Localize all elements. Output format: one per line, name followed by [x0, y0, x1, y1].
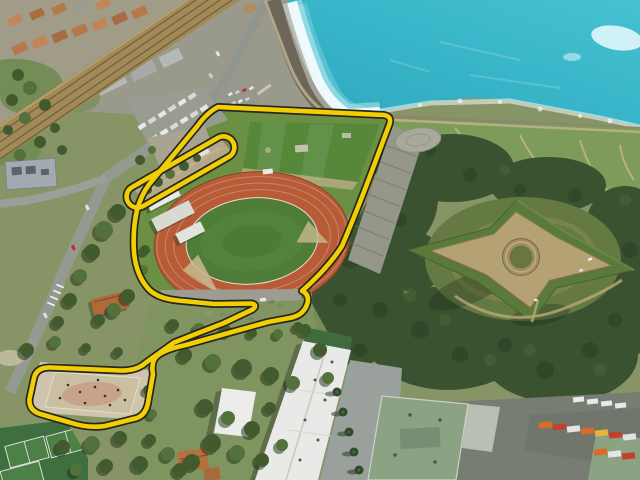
- aerial-photo-stage: [0, 0, 640, 480]
- aerial-photo: [0, 0, 640, 480]
- track-shelter: [263, 168, 273, 174]
- flat-roof-building: [5, 158, 57, 189]
